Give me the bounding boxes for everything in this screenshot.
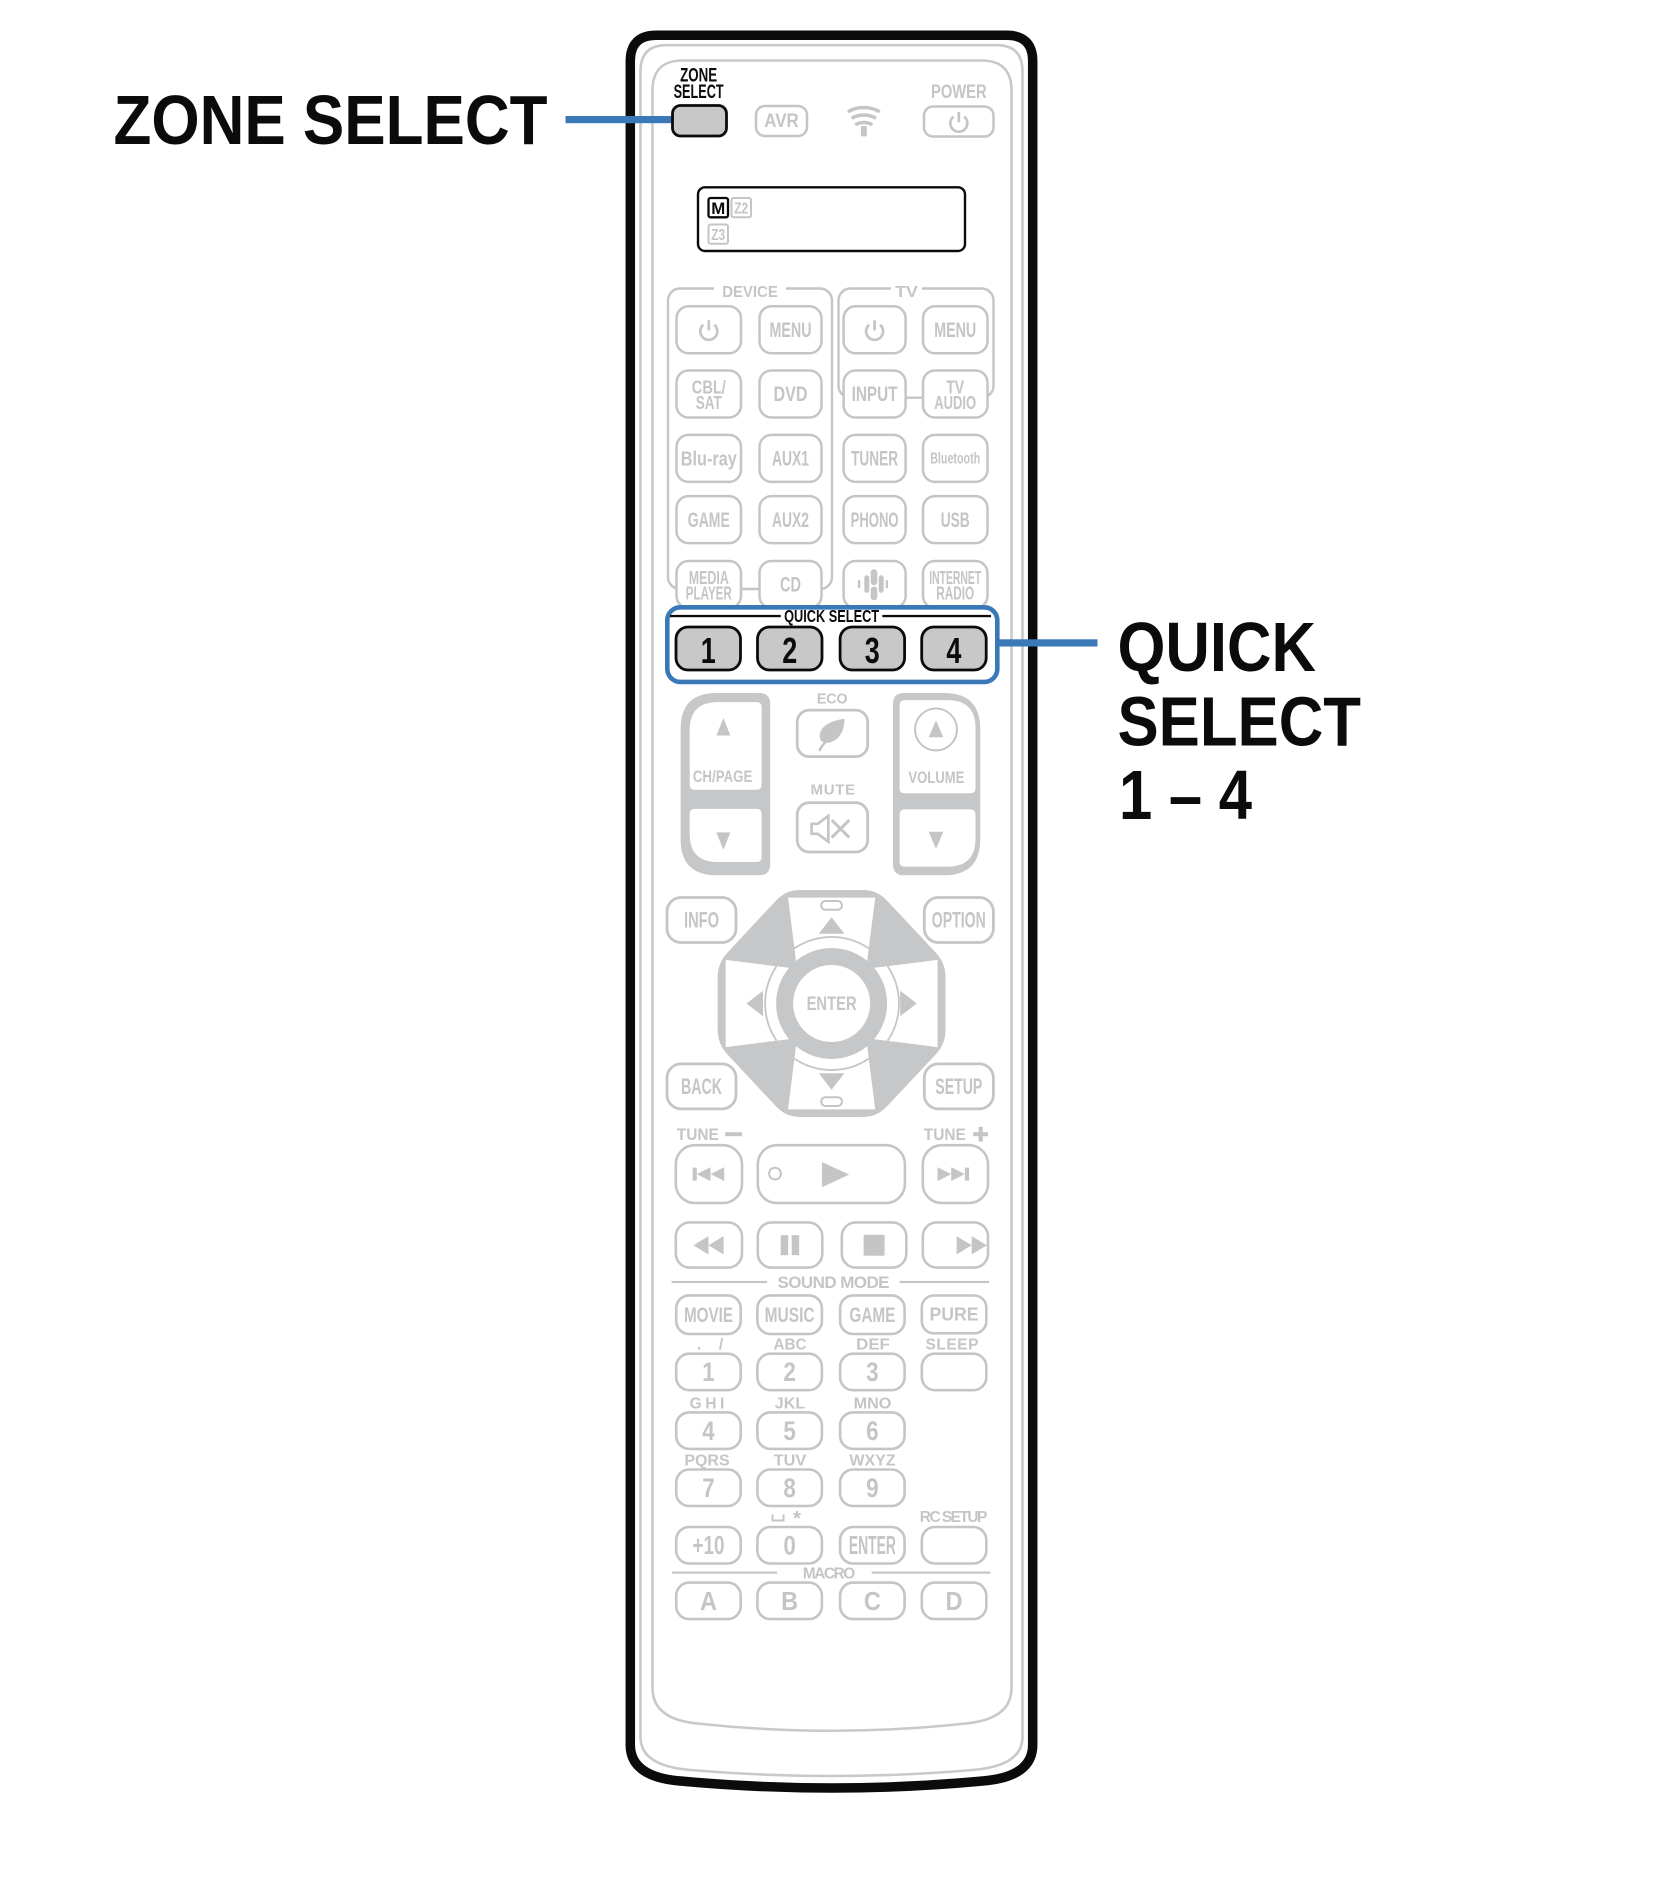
svg-text:CD: CD — [780, 574, 801, 597]
svg-text:DEVICE: DEVICE — [722, 284, 778, 301]
svg-text:1: 1 — [702, 1357, 715, 1387]
svg-text:1: 1 — [701, 630, 716, 671]
svg-text:MENU: MENU — [934, 319, 976, 342]
svg-text:C: C — [864, 1586, 881, 1616]
svg-text:INPUT: INPUT — [852, 383, 898, 406]
svg-text:ENTER: ENTER — [807, 993, 857, 1015]
svg-text:6: 6 — [866, 1416, 879, 1446]
svg-text:SOUND MODE: SOUND MODE — [778, 1273, 890, 1292]
svg-text:7: 7 — [702, 1473, 715, 1503]
svg-text:SELECT: SELECT — [1118, 683, 1362, 761]
svg-text:Bluetooth: Bluetooth — [930, 451, 980, 468]
svg-text:PHONO: PHONO — [851, 509, 899, 532]
svg-text:2: 2 — [783, 1357, 796, 1387]
svg-text:TUNER: TUNER — [851, 448, 898, 471]
svg-text:3: 3 — [865, 630, 880, 671]
svg-text:BACK: BACK — [681, 1074, 722, 1099]
svg-text:TUV: TUV — [774, 1453, 807, 1470]
svg-text:SAT: SAT — [696, 393, 722, 413]
svg-text:SETUP: SETUP — [935, 1074, 982, 1099]
svg-text:MUSIC: MUSIC — [765, 1303, 815, 1327]
svg-text:ABC: ABC — [774, 1337, 807, 1354]
svg-text:RADIO: RADIO — [936, 583, 974, 603]
svg-text:0: 0 — [783, 1531, 796, 1561]
svg-text:MENU: MENU — [770, 319, 812, 342]
svg-text:TUNE: TUNE — [677, 1125, 719, 1144]
svg-text:POWER: POWER — [931, 81, 987, 103]
svg-text:2: 2 — [782, 630, 797, 671]
svg-text:D: D — [946, 1586, 963, 1616]
svg-text:TV: TV — [895, 284, 918, 301]
svg-text:VOLUME: VOLUME — [908, 769, 964, 787]
svg-text:MUTE: MUTE — [811, 782, 856, 799]
svg-text:4: 4 — [946, 630, 961, 671]
svg-text:OPTION: OPTION — [932, 908, 986, 933]
svg-text:QUICK: QUICK — [1118, 608, 1317, 686]
svg-text:AVR: AVR — [764, 110, 799, 132]
svg-text:INFO: INFO — [684, 908, 719, 933]
svg-text:4: 4 — [702, 1416, 715, 1446]
svg-text:USB: USB — [941, 509, 970, 532]
svg-text:GAME: GAME — [849, 1303, 895, 1327]
svg-text:PQRS: PQRS — [684, 1453, 729, 1470]
svg-text:WXYZ: WXYZ — [849, 1453, 896, 1470]
svg-text:MOVIE: MOVIE — [684, 1303, 733, 1327]
svg-text:CH/PAGE: CH/PAGE — [693, 768, 753, 786]
svg-text:ENTER: ENTER — [849, 1530, 896, 1560]
svg-text:A: A — [700, 1586, 717, 1616]
svg-text:GHI: GHI — [690, 1395, 725, 1412]
svg-text:DEF: DEF — [856, 1337, 890, 1354]
svg-text:SLEEP: SLEEP — [926, 1337, 979, 1354]
svg-text:Z2: Z2 — [734, 201, 748, 218]
svg-text:AUDIO: AUDIO — [934, 393, 976, 413]
svg-text:M: M — [711, 199, 725, 218]
svg-text:ECO: ECO — [817, 691, 848, 707]
svg-text:QUICK SELECT: QUICK SELECT — [784, 606, 879, 626]
svg-text:+10: +10 — [693, 1530, 725, 1560]
svg-text:Z3: Z3 — [711, 227, 725, 244]
svg-text:JKL: JKL — [775, 1395, 806, 1412]
svg-text:9: 9 — [866, 1473, 879, 1503]
svg-text:MACRO: MACRO — [803, 1566, 856, 1583]
svg-text:. /: . / — [697, 1337, 724, 1354]
svg-text:TUNE: TUNE — [924, 1125, 966, 1144]
svg-text:GAME: GAME — [688, 509, 730, 532]
svg-text:AUX2: AUX2 — [772, 509, 809, 532]
svg-text:3: 3 — [866, 1357, 879, 1387]
svg-text:5: 5 — [783, 1416, 796, 1446]
svg-text:AUX1: AUX1 — [772, 448, 809, 471]
svg-text:8: 8 — [783, 1473, 796, 1503]
svg-text:1 – 4: 1 – 4 — [1119, 756, 1252, 834]
svg-text:RC SETUP: RC SETUP — [920, 1509, 988, 1526]
svg-text:Blu-ray: Blu-ray — [681, 448, 738, 470]
svg-text:PURE: PURE — [930, 1305, 979, 1325]
svg-text:DVD: DVD — [774, 383, 808, 406]
svg-text:ZONE SELECT: ZONE SELECT — [114, 81, 548, 159]
svg-text:B: B — [781, 1586, 798, 1616]
svg-text:PLAYER: PLAYER — [686, 583, 732, 603]
svg-text:MNO: MNO — [854, 1395, 892, 1412]
svg-text:SELECT: SELECT — [674, 81, 724, 103]
